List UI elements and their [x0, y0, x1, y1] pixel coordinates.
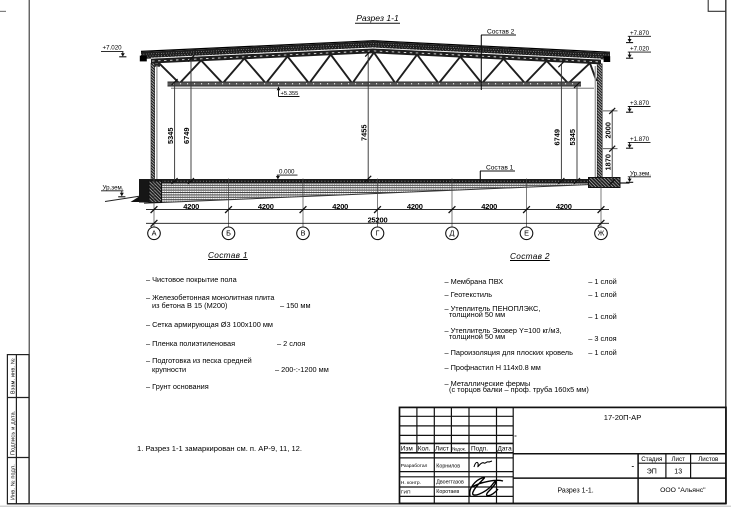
- svg-text:Двоегтазов: Двоегтазов: [436, 480, 464, 486]
- svg-text:Кол.: Кол.: [418, 446, 431, 453]
- svg-text:ЭП: ЭП: [647, 469, 657, 476]
- svg-text:13: 13: [674, 469, 682, 476]
- svg-text:17-20П-АР: 17-20П-АР: [604, 413, 642, 422]
- svg-text:Лист: Лист: [671, 456, 685, 463]
- svg-text:Листов: Листов: [698, 456, 719, 463]
- svg-text:Н. контр.: Н. контр.: [401, 480, 421, 486]
- svg-text:№док.: №док.: [452, 447, 466, 453]
- svg-text:Разрез 1-1.: Разрез 1-1.: [557, 487, 593, 494]
- svg-text:Разработал: Разработал: [401, 463, 428, 469]
- svg-text:ГИП: ГИП: [401, 490, 411, 496]
- svg-text:Лист: Лист: [435, 446, 449, 453]
- svg-text:Коротаев: Коротаев: [436, 489, 459, 495]
- svg-text:Подп.: Подп.: [471, 446, 488, 453]
- svg-text:Стадия: Стадия: [641, 456, 662, 463]
- svg-text:ООО "Альянс": ООО "Альянс": [660, 487, 706, 494]
- svg-text:Изм: Изм: [401, 446, 413, 453]
- svg-text:Дата: Дата: [498, 446, 513, 453]
- svg-text:Корнилов: Корнилов: [436, 463, 460, 469]
